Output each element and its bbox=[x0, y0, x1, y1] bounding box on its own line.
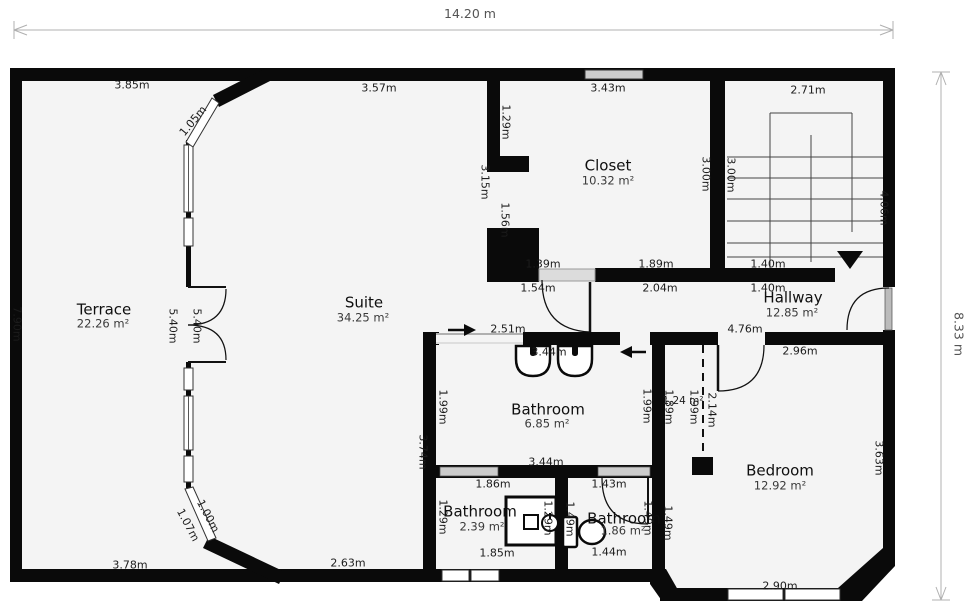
dim-label: 2.71m bbox=[790, 85, 825, 96]
room-label-bathroom-left: Bathroom bbox=[443, 505, 517, 520]
room-label-bedroom: Bedroom bbox=[746, 464, 814, 479]
floor-plan: 14.20 m 8.33 m 3.85m 1.05m 3.57m 3.43m 2… bbox=[0, 0, 968, 608]
dim-label: 4.06m bbox=[879, 190, 890, 225]
dim-label: 3.44m bbox=[531, 347, 566, 358]
dim-label: 3.00m bbox=[701, 156, 712, 191]
dim-label: 1.39m bbox=[525, 259, 560, 270]
room-area-bathroom-left: 2.39 m² bbox=[459, 521, 504, 533]
dim-label: 7.90m bbox=[12, 306, 23, 341]
chimney-block bbox=[487, 228, 539, 282]
dim-label: 1.49m bbox=[565, 501, 576, 536]
overall-width-dim: 14.20 m bbox=[444, 8, 496, 21]
dim-label: 1.29m bbox=[501, 104, 512, 139]
dim-label: 3.44m bbox=[528, 457, 563, 468]
room-label-bathroom-main: Bathroom bbox=[511, 403, 585, 418]
dim-label: 1.99m bbox=[642, 388, 653, 423]
dim-label: 2.90m bbox=[762, 581, 797, 592]
dim-label: 3.15m bbox=[480, 164, 491, 199]
room-area-hallway: 12.85 m² bbox=[766, 307, 818, 319]
dim-label: 1.56m bbox=[500, 202, 511, 237]
dim-label: 1.89m bbox=[638, 259, 673, 270]
room-area-closet: 10.32 m² bbox=[582, 175, 634, 187]
dim-label: 1.29m bbox=[543, 500, 554, 535]
dim-label: 3.00m bbox=[726, 157, 737, 192]
room-label-terrace: Terrace bbox=[77, 303, 132, 318]
room-area-bathroom-right: 1.86 m² bbox=[600, 525, 645, 537]
dim-label: 5.40m bbox=[192, 308, 203, 343]
dim-label: 1.44m bbox=[591, 547, 626, 558]
dim-label: 2.63m bbox=[330, 558, 365, 569]
room-label-suite: Suite bbox=[345, 296, 383, 311]
dim-label: 1.99m bbox=[689, 389, 700, 424]
dim-label: 1.99m bbox=[438, 389, 449, 424]
dim-label: 2.51m bbox=[490, 324, 525, 335]
dim-label: 1.43m bbox=[591, 479, 626, 490]
room-label-hallway: Hallway bbox=[763, 291, 822, 306]
dim-label: 1.85m bbox=[479, 548, 514, 559]
dim-label: 3.74m bbox=[418, 434, 429, 469]
dim-label: 3.78m bbox=[112, 560, 147, 571]
dim-label: 3.57m bbox=[361, 83, 396, 94]
room-label-closet: Closet bbox=[585, 159, 632, 174]
room-area-bathroom-main: 6.85 m² bbox=[524, 418, 569, 430]
room-area-terrace: 22.26 m² bbox=[77, 318, 129, 330]
dim-label: 2.14m bbox=[707, 392, 718, 427]
dim-label: 1.49m bbox=[663, 505, 674, 540]
room-area-bedroom: 12.92 m² bbox=[754, 480, 806, 492]
dim-label: 3.63m bbox=[874, 440, 885, 475]
dim-label: 5.40m bbox=[168, 308, 179, 343]
room-area-suite: 34.25 m² bbox=[337, 312, 389, 324]
dim-label: 3.85m bbox=[114, 80, 149, 91]
dim-label: 4.76m bbox=[727, 324, 762, 335]
dim-label: 1.86m bbox=[475, 479, 510, 490]
dim-label: 1.40m bbox=[750, 259, 785, 270]
overall-height-dim: 8.33 m bbox=[952, 312, 965, 356]
dim-label: 2.04m bbox=[642, 283, 677, 294]
dim-label: 2.96m bbox=[782, 346, 817, 357]
dim-label: 1.54m bbox=[520, 283, 555, 294]
dim-label: 3.43m bbox=[590, 83, 625, 94]
